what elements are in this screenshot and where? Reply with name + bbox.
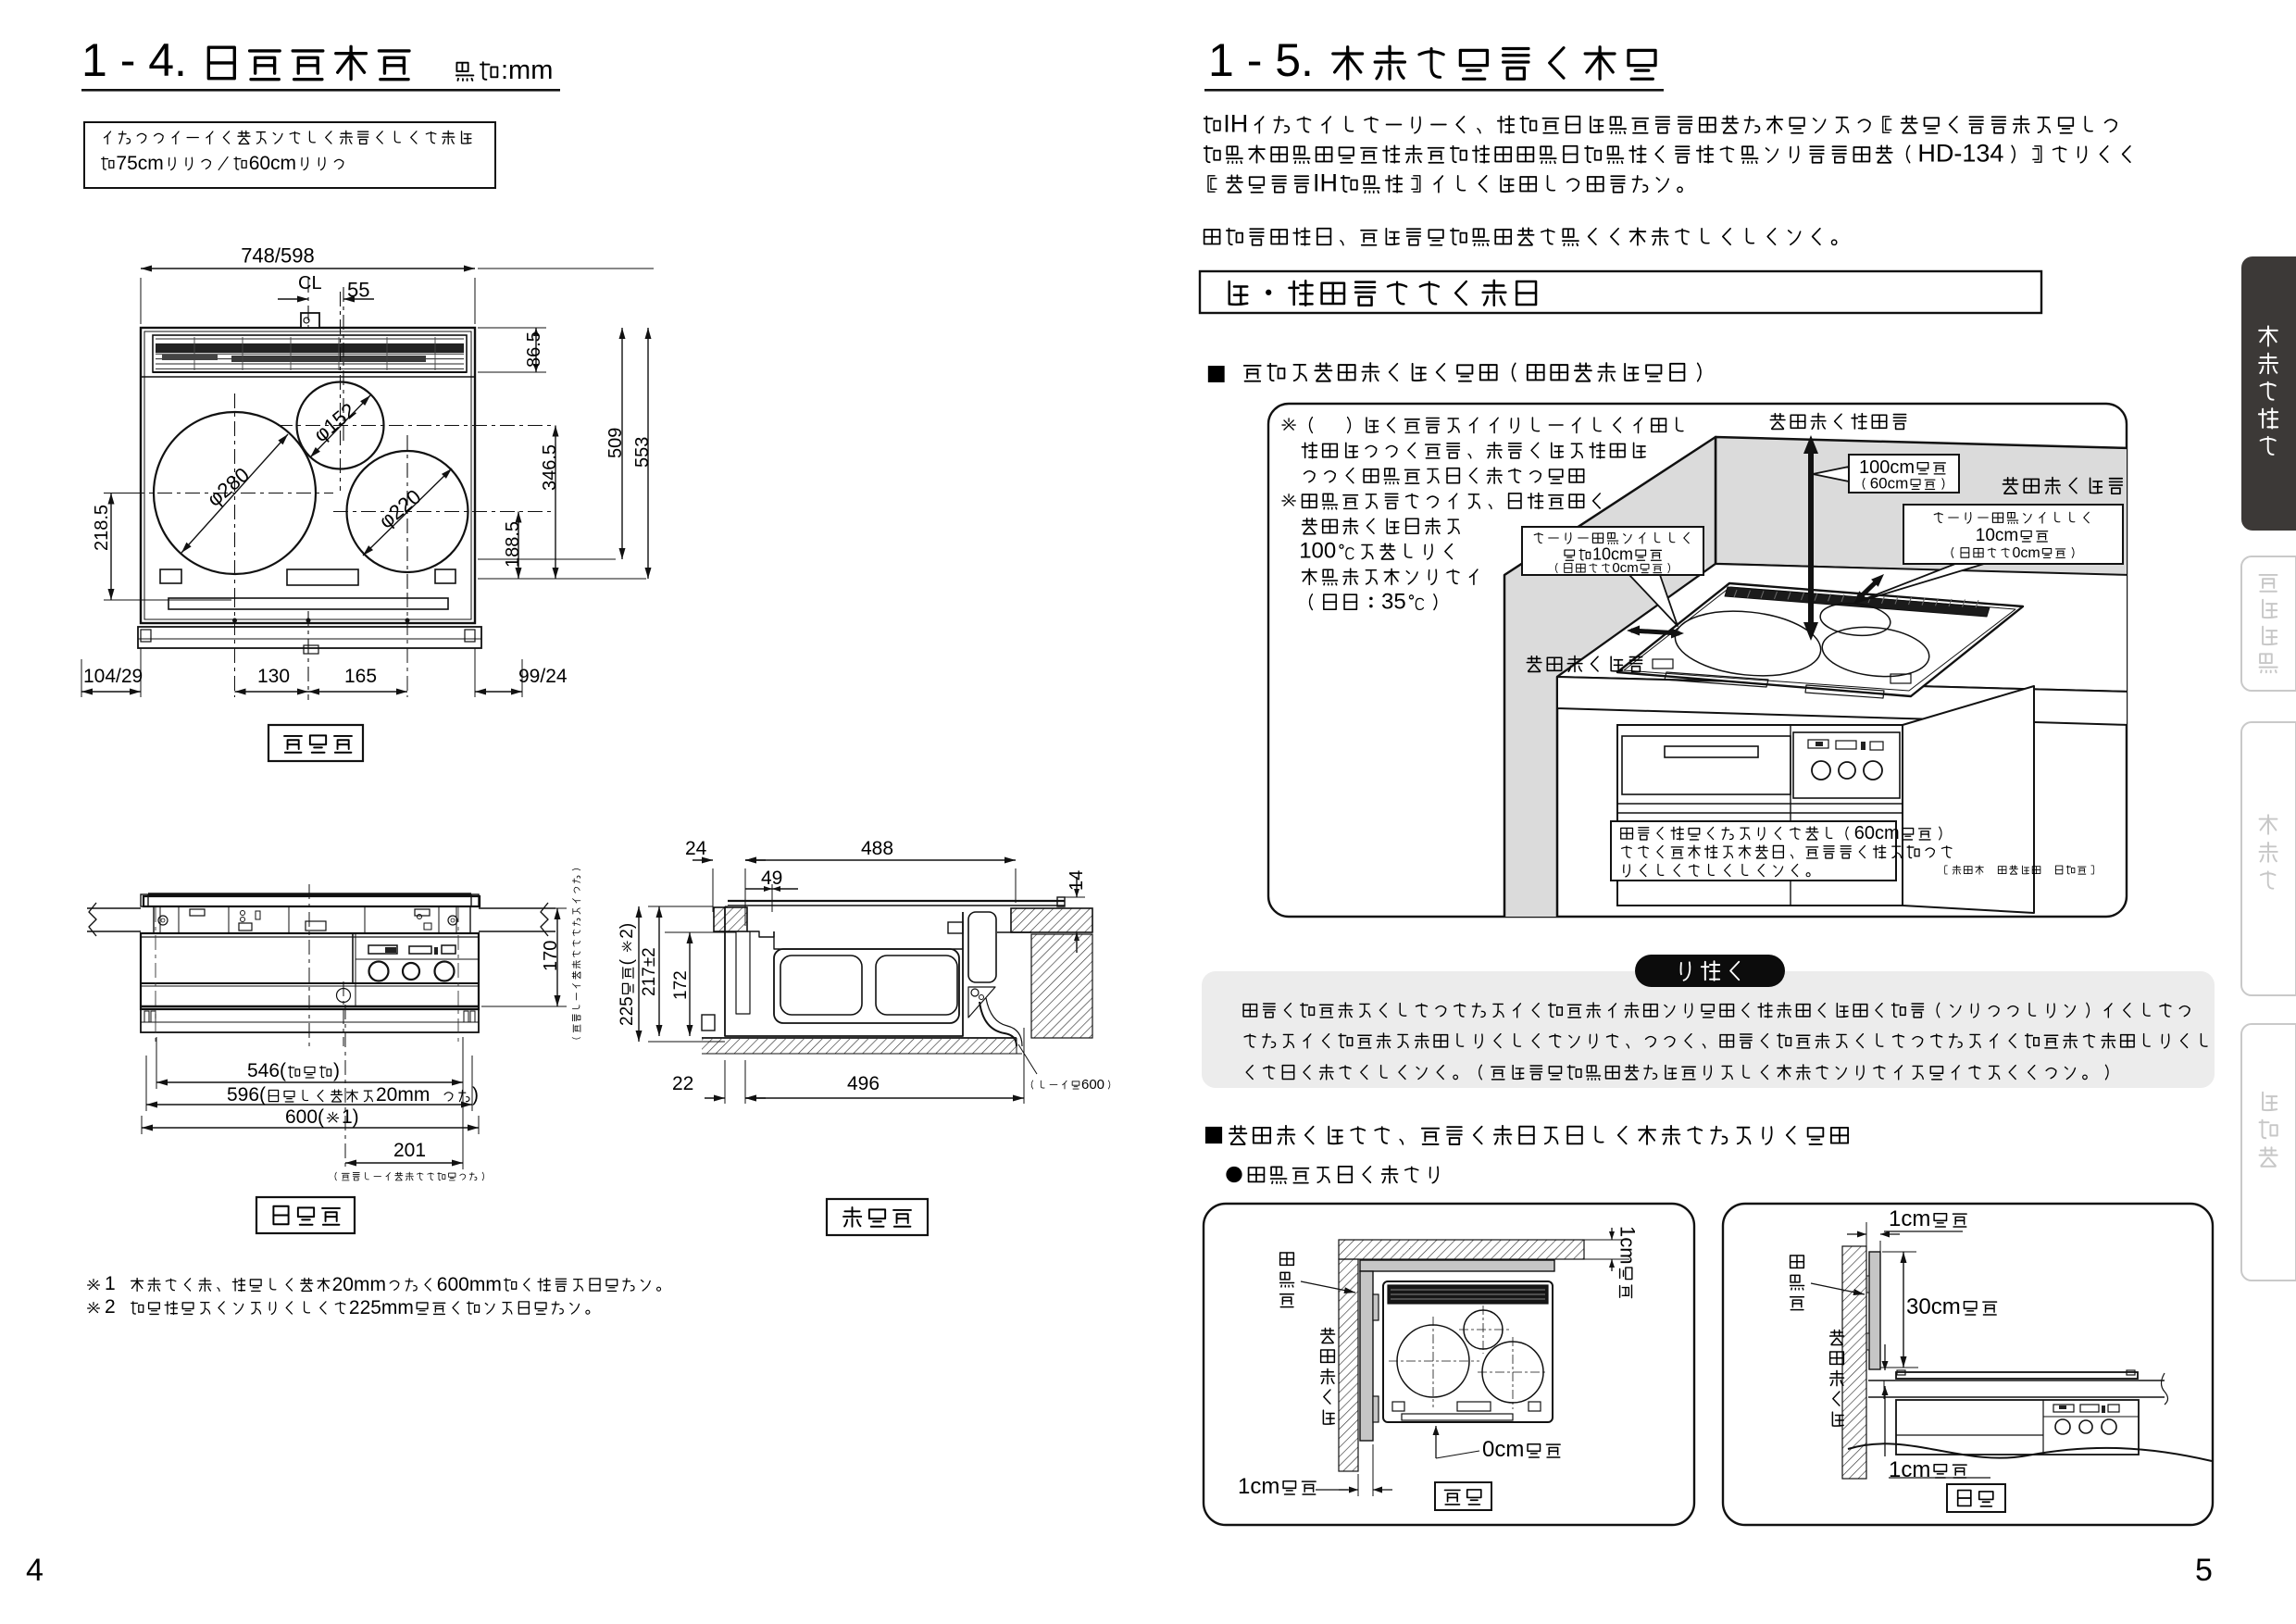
svg-text:188.5: 188.5 (503, 521, 523, 568)
svg-text:1cm: 1cm (1889, 1206, 1930, 1231)
svg-text:): ) (472, 1084, 479, 1106)
svg-text:104/29: 104/29 (83, 666, 143, 687)
svg-text:): ) (333, 1060, 340, 1081)
svg-text:20mm: 20mm (332, 1274, 386, 1295)
svg-text:HD-134: HD-134 (1917, 140, 2003, 168)
svg-text:35: 35 (1381, 589, 1406, 614)
svg-text:60cm: 60cm (1854, 823, 1900, 843)
svg-text:225mm: 225mm (349, 1297, 414, 1318)
svg-text:596(: 596( (227, 1084, 266, 1106)
svg-text:488: 488 (861, 838, 893, 859)
svg-text:IH: IH (1313, 169, 1338, 197)
svg-text:201: 201 (393, 1140, 426, 1161)
svg-text:1): 1) (342, 1106, 359, 1128)
svg-text:1cm: 1cm (1616, 1226, 1639, 1265)
svg-text:24: 24 (685, 838, 707, 859)
svg-text:130: 130 (257, 666, 290, 687)
svg-text:CL: CL (298, 273, 322, 294)
svg-text:170: 170 (541, 941, 561, 971)
svg-text:218.5: 218.5 (92, 505, 112, 551)
svg-text:49: 49 (761, 868, 782, 889)
svg-text:(: ( (618, 958, 637, 965)
svg-text:600: 600 (1081, 1077, 1104, 1093)
svg-text:553: 553 (632, 437, 653, 468)
svg-text:60cm: 60cm (1870, 475, 1909, 493)
svg-text:600(: 600( (285, 1106, 324, 1128)
svg-text:14: 14 (1067, 870, 1087, 891)
svg-text:60cm: 60cm (249, 153, 296, 174)
svg-text:600mm: 600mm (437, 1274, 502, 1295)
svg-text:217±2: 217±2 (640, 947, 659, 996)
svg-text:1cm: 1cm (1889, 1457, 1930, 1482)
svg-text:10cm: 10cm (1976, 526, 2018, 545)
svg-text:30cm: 30cm (1906, 1294, 1961, 1319)
svg-text:20mm: 20mm (376, 1084, 430, 1106)
svg-text:346.5: 346.5 (540, 444, 560, 491)
svg-text:22: 22 (672, 1073, 693, 1094)
svg-text:546(: 546( (247, 1060, 286, 1081)
svg-text:75cm: 75cm (116, 153, 163, 174)
svg-text:5: 5 (2195, 1553, 2213, 1588)
svg-text:100: 100 (1299, 539, 1336, 564)
svg-text:IH: IH (1223, 110, 1248, 138)
svg-text:748/598: 748/598 (241, 244, 315, 268)
svg-text:99/24: 99/24 (518, 666, 568, 687)
svg-text:225: 225 (618, 996, 637, 1026)
svg-text:86.5: 86.5 (524, 331, 544, 368)
svg-text:1: 1 (105, 1273, 116, 1294)
svg-text:496: 496 (847, 1073, 880, 1094)
svg-text::mm: :mm (501, 56, 553, 85)
svg-text:1 - 5.: 1 - 5. (1208, 34, 1314, 86)
svg-text:0cm: 0cm (1482, 1437, 1524, 1462)
svg-text:2): 2) (618, 923, 637, 939)
svg-text:172: 172 (671, 970, 691, 1000)
svg-text:1 - 4.: 1 - 4. (81, 34, 187, 86)
svg-text:0cm: 0cm (1612, 560, 1638, 576)
svg-text:2: 2 (105, 1296, 116, 1318)
svg-text:4: 4 (26, 1553, 44, 1588)
svg-text:165: 165 (344, 666, 377, 687)
svg-text:509: 509 (605, 428, 626, 458)
svg-text:1cm: 1cm (1238, 1474, 1279, 1499)
svg-text:0cm: 0cm (2013, 545, 2040, 561)
